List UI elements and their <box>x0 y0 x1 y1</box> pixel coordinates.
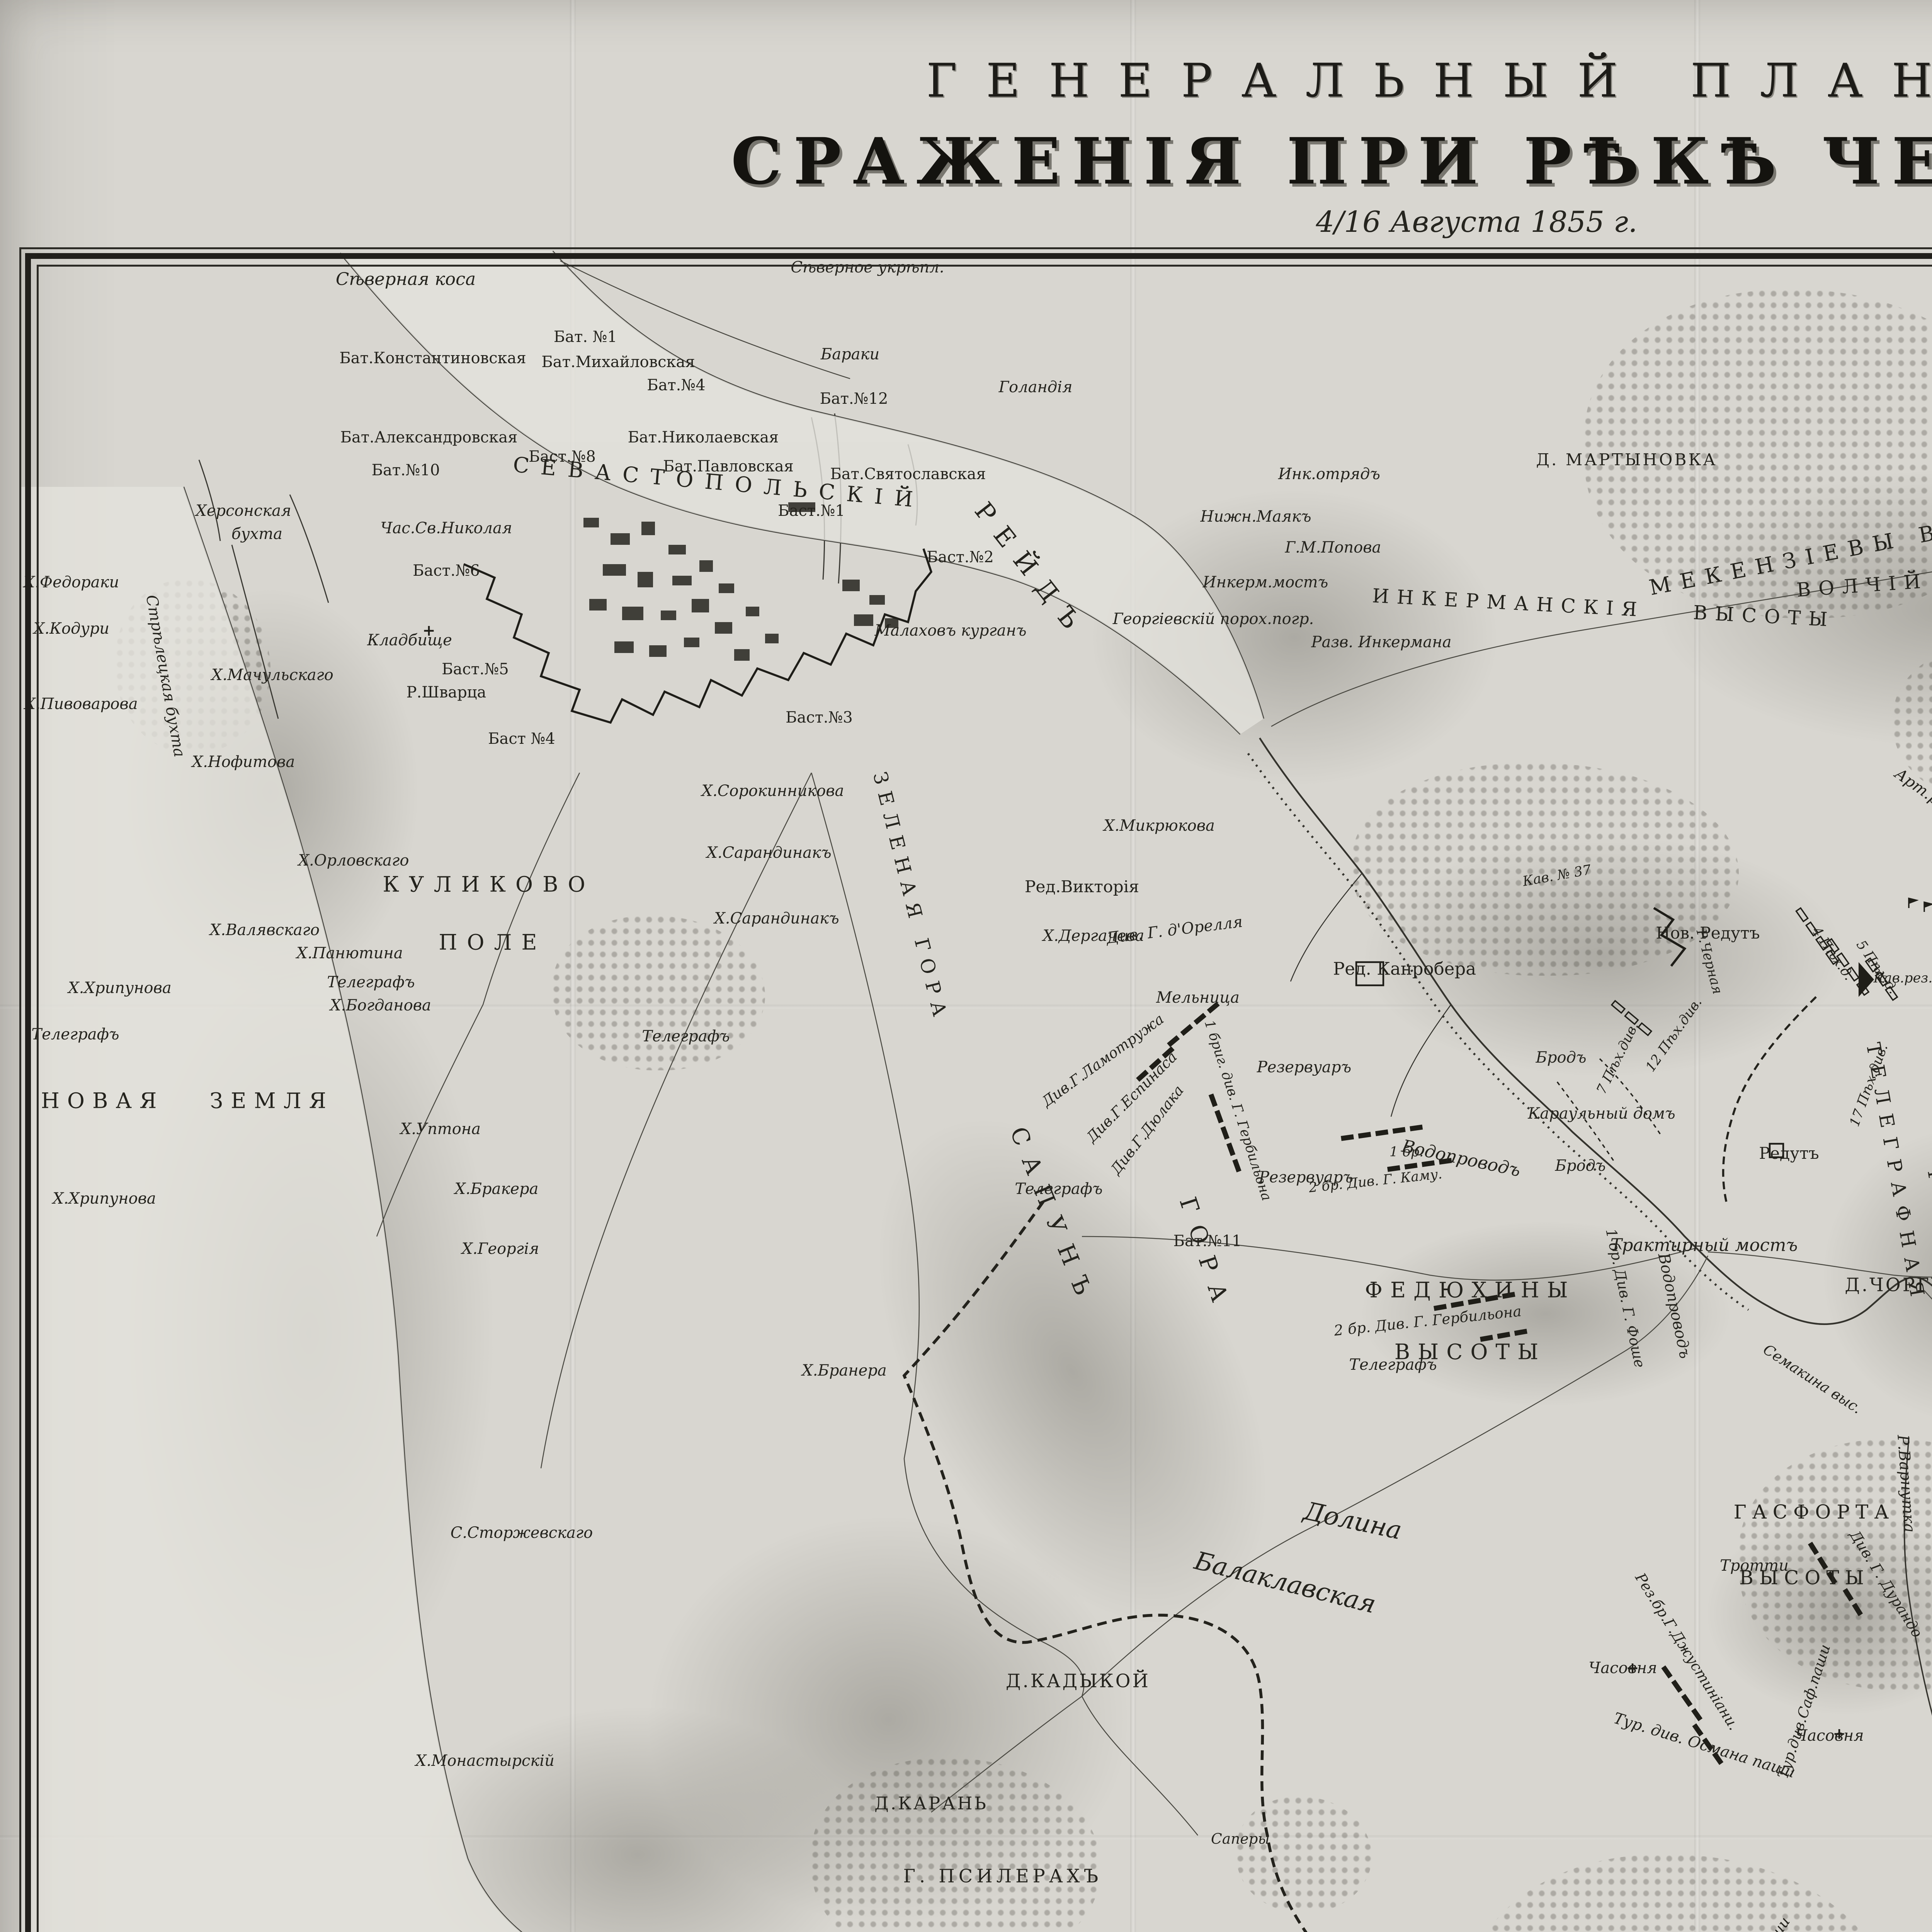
map-label-kh-branera: Х.Бранера <box>802 1364 887 1379</box>
map-label-rezervuar-1: Резервуаръ <box>1257 1061 1351 1076</box>
map-label-gm-popova: Г.М.Попова <box>1285 541 1381 556</box>
map-label-bat-konstantinovskaya: Бат.Константиновская <box>339 352 526 367</box>
map-label-severnoe-ukrepl: Сѣверное укрѣпл. <box>791 261 944 276</box>
map-label-kh-nofitova: Х.Нофитова <box>192 755 295 771</box>
map-label-kladbische: Кладбище <box>367 634 452 649</box>
map-label-brod-1: Бродъ <box>1536 1051 1586 1066</box>
map-label-kh-fedoraki: Х.Федораки <box>24 576 119 591</box>
map-label-kh-koduri: Х.Кодури <box>34 622 109 638</box>
map-label-br-1: 1 бр. <box>1389 1147 1423 1160</box>
map-label-inkerm-most: Инкерм.мостъ <box>1203 576 1328 591</box>
map-label-karaulny-dom: Караульный домъ <box>1528 1107 1675 1122</box>
map-label-trotti: Тротти <box>1720 1559 1789 1575</box>
map-label-red-viktoriya: Ред.Викторія <box>1025 881 1139 897</box>
map-label-malakhov-kurgan: Малаховъ курганъ <box>874 624 1026 639</box>
map-label-kh-mikryukova: Х.Микрюкова <box>1104 819 1215 835</box>
map-label-gasforta: ГАСФОРТА <box>1734 1505 1895 1524</box>
map-label-melnitsa: Мельница <box>1156 991 1240 1007</box>
map-label-kh-bogdanova: Х.Богданова <box>330 999 431 1014</box>
map-label-kh-sarandinak-2: Х.Сарандинакъ <box>714 912 839 927</box>
map-label-kh-machulskago: Х.Мачульскаго <box>211 668 333 684</box>
map-label-kh-pivovarova: Х.Пивоварова <box>24 697 138 713</box>
map-label-kh-khripunova-1: Х.Хрипунова <box>68 981 172 997</box>
map-label-bat-n4: Бат.№4 <box>647 379 705 394</box>
map-label-golandiya: Голандія <box>999 381 1073 396</box>
map-label-s-storzhevskago: С.Сторжевскаго <box>451 1526 593 1542</box>
map-label-g-psilerakh: Г. ПСИЛЕРАХЪ <box>903 1869 1102 1887</box>
map-label-telegraf-sarandinaki: Телеграфъ <box>642 1030 730 1045</box>
map-label-bat-n10: Бат.№10 <box>372 464 440 479</box>
map-label-novaya-zemlya: НОВАЯ ЗЕМЛЯ <box>41 1091 334 1112</box>
map-label-telegraf-west: Телеграфъ <box>31 1028 119 1043</box>
map-label-ink-otryad: Инк.отрядъ <box>1278 468 1380 483</box>
map-label-bast-n1: Баст.№1 <box>778 504 845 520</box>
map-label-kh-sarandinak-1: Х.Сарандинакъ <box>706 846 831 862</box>
map-label-sapery: Саперы <box>1211 1832 1270 1847</box>
map-label-nov-redut: Нов. Редутъ <box>1656 927 1760 944</box>
map-label-kh-khripunova-2: Х.Хрипунова <box>53 1192 156 1207</box>
map-label-redut: Редутъ <box>1759 1147 1819 1164</box>
map-label-severnaya-kosa: Сѣверная коса <box>336 274 476 291</box>
map-label-khersonskaya-bukhta-2: бухта <box>231 527 282 543</box>
map-label-baraki: Бараки <box>821 348 879 363</box>
map-label-kh-orlovskago: Х.Орловскаго <box>298 854 409 869</box>
map-label-razv-inkermana: Разв. Инкермана <box>1311 636 1452 651</box>
map-label-bat-n12: Бат.№12 <box>820 392 888 408</box>
cavalry-flag-symbols <box>1909 898 1932 920</box>
map-label-bat-mikhailovskaya: Бат.Михайловская <box>541 355 695 371</box>
map-label-bat-n1: Бат. №1 <box>554 330 617 346</box>
map-label-georgievsky-porokh-pogr: Георгіевскій порох.погр. <box>1113 612 1314 628</box>
map-label-d-kadykoy: Д.КАДЫКОЙ <box>1006 1673 1150 1692</box>
map-label-brod-2: Бродъ <box>1555 1159 1605 1175</box>
map-label-bast-n6: Баст.№6 <box>413 564 480 580</box>
map-label-fedyukhiny: ФЕДЮХИНЫ <box>1365 1280 1575 1301</box>
map-label-bast-n4: Баст №4 <box>488 732 555 748</box>
map-label-d-karan: Д.КАРАНЬ <box>874 1798 988 1815</box>
map-label-bat-svyatoslavskaya: Бат.Святославская <box>830 468 986 483</box>
map-label-red-kanrobera: Ред. Канробера <box>1333 963 1476 981</box>
map-label-bat-n11: Бат.№11 <box>1173 1235 1242 1250</box>
map-label-kh-valyavskago: Х.Валявскаго <box>210 923 320 939</box>
map-label-kulikovo: КУЛИКОВО <box>383 874 595 896</box>
map-sheet: ГЕНЕРАЛЬНЫЙ ПЛАНЪ СРАЖЕНІЯ ПРИ РѢКѢ ЧЕРН… <box>0 0 1932 1932</box>
map-label-bast-n2: Баст.№2 <box>927 551 994 566</box>
map-label-telegraf-sapun: Телеграфъ <box>1015 1182 1102 1198</box>
map-label-pole: ПОЛЕ <box>439 932 546 954</box>
map-label-kh-brakera: Х.Бракера <box>454 1182 538 1198</box>
map-label-kav-rez: Кав.рез. <box>1874 973 1932 986</box>
map-label-bat-nikolaevskaya: Бат.Николаевская <box>628 431 779 446</box>
map-label-kh-sorokinnikova: Х.Сорокинникова <box>702 784 844 800</box>
map-label-bat-pavlovskaya: Бат.Павловская <box>663 460 794 475</box>
map-label-bast-n3: Баст.№3 <box>786 711 853 726</box>
map-label-kh-uptona: Х.Уптона <box>400 1122 481 1138</box>
map-label-bast-n5: Баст.№5 <box>442 663 509 678</box>
map-label-bast-n8: Баст.№8 <box>529 450 596 466</box>
map-label-kh-panyutina: Х.Панютина <box>296 947 403 962</box>
map-label-bat-aleksandrovskaya: Бат.Александровская <box>340 431 518 446</box>
map-label-khersonskaya-bukhta-1: Херсонская <box>196 504 291 520</box>
chapel-cross-symbols <box>424 626 1932 1739</box>
map-label-chasovnya-1: Часовня <box>1588 1662 1657 1677</box>
map-label-kh-monastyrsky: Х.Монастырскій <box>415 1754 554 1770</box>
map-label-nizhn-mayak: Нижн.Маякъ <box>1200 510 1311 526</box>
map-label-chas-sv-nikolaya: Час.Св.Николая <box>381 522 512 537</box>
map-label-kh-georgiya: Х.Георгія <box>462 1242 539 1258</box>
map-label-d-martynovka: Д. МАРТЫНОВКА <box>1536 454 1717 470</box>
map-label-traktirny-most: Трактирный мостъ <box>1611 1240 1798 1257</box>
map-label-r-shvartsa: Р.Шварца <box>406 686 486 701</box>
map-label-telegraf-kulikovo: Телеграфъ <box>327 976 415 991</box>
map-label-telegraf-fedyukhiny: Телеграфъ <box>1349 1358 1437 1374</box>
map-engraving <box>0 0 1932 1932</box>
